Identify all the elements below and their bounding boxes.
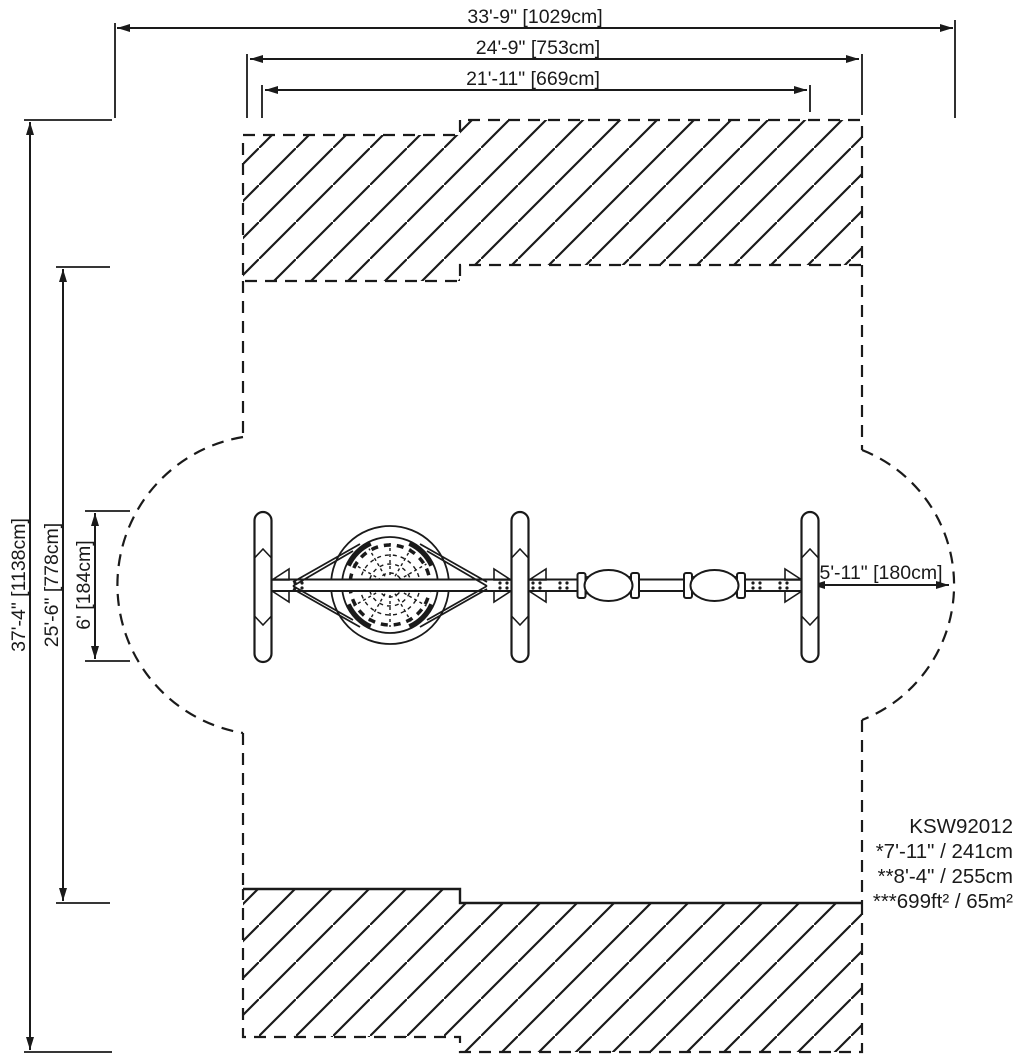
dimension-frame-depth: 6' [184cm]: [73, 511, 130, 661]
dim-total-width-label: 33'-9" [1029cm]: [467, 6, 602, 28]
swing-post-left: [255, 512, 272, 662]
dim-use-zone-width-label: 24'-9" [753cm]: [476, 37, 600, 59]
plan-drawing-canvas: 33'-9" [1029cm] 24'-9" [753cm] 21'-11" […: [0, 0, 1024, 1061]
model-number: KSW92012: [909, 815, 1013, 838]
top-safety-hatch-band: [243, 120, 862, 281]
model-info-block: KSW92012 *7'-11" / 241cm **8'-4" / 255cm…: [873, 815, 1013, 913]
dim-use-zone-height-label: 25'-6" [778cm]: [41, 523, 63, 647]
dim-frame-width-label: 21'-11" [669cm]: [466, 68, 600, 90]
dimension-total-width: 33'-9" [1029cm]: [115, 6, 955, 118]
belt-seat-1: [578, 570, 640, 601]
swing-post-middle: [512, 512, 529, 662]
swing-post-right: [802, 512, 819, 662]
note-area: ***699ft² / 65m²: [873, 890, 1013, 913]
note-deck-height: *7'-11" / 241cm: [876, 840, 1013, 863]
dimension-frame-width: 21'-11" [669cm]: [262, 68, 810, 118]
note-overall-height: **8'-4" / 255cm: [878, 865, 1013, 888]
dimension-side-clearance: 5'-11" [180cm]: [812, 562, 949, 589]
left-bulge-arc: [117, 437, 243, 733]
bottom-safety-hatch-band: [243, 889, 862, 1052]
dim-side-clearance-label: 5'-11" [180cm]: [819, 562, 942, 584]
dim-total-height-label: 37'-4" [1138cm]: [8, 518, 30, 652]
belt-seat-2: [684, 570, 745, 601]
swing-set-plan-view: 33'-9" [1029cm] 24'-9" [753cm] 21'-11" […: [0, 0, 1024, 1061]
dim-frame-depth-label: 6' [184cm]: [73, 540, 95, 629]
